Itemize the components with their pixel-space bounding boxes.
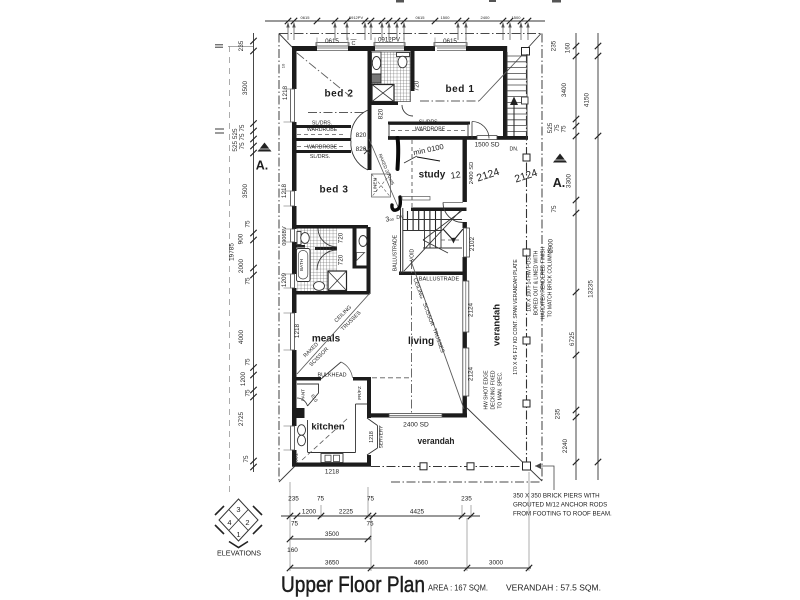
svg-text:GROUTED M/12 ANCHOR RODS: GROUTED M/12 ANCHOR RODS [513, 502, 607, 509]
svg-text:4660: 4660 [414, 560, 429, 567]
svg-text:WARDROBE: WARDROBE [307, 127, 338, 133]
svg-text:BORED OUT & LINED WITH: BORED OUT & LINED WITH [534, 250, 540, 315]
svg-text:2102: 2102 [469, 236, 476, 251]
svg-text:3500: 3500 [242, 80, 249, 95]
svg-text:1218: 1218 [282, 85, 289, 100]
svg-text:3500: 3500 [242, 183, 249, 198]
svg-text:13235: 13235 [588, 280, 595, 298]
svg-text:720: 720 [414, 80, 421, 91]
svg-text:3300: 3300 [566, 173, 573, 188]
svg-text:1: 1 [236, 530, 240, 539]
svg-text:4150: 4150 [584, 92, 591, 107]
svg-text:1200: 1200 [240, 371, 247, 386]
svg-text:BULKHEAD: BULKHEAD [317, 373, 346, 379]
svg-text:1500: 1500 [441, 15, 451, 20]
svg-text:1200: 1200 [302, 509, 317, 516]
svg-text:VERANDAH : 57.5 SQM.: VERANDAH : 57.5 SQM. [506, 584, 601, 593]
svg-text:verandah: verandah [492, 304, 503, 346]
svg-text:75: 75 [561, 125, 568, 133]
svg-text:BALLUSTRADE: BALLUSTRADE [393, 234, 399, 271]
svg-text:235: 235 [555, 408, 562, 419]
svg-text:SL/DRS.: SL/DRS. [312, 121, 332, 127]
svg-text:bed 2: bed 2 [324, 89, 353, 100]
svg-text:2900: 2900 [548, 238, 555, 253]
svg-text:350 X 350 BRICK PIERS WITH: 350 X 350 BRICK PIERS WITH [513, 493, 600, 500]
svg-text:720: 720 [338, 254, 345, 265]
svg-text:2400 SD: 2400 SD [403, 422, 429, 429]
svg-text:12: 12 [450, 169, 461, 180]
svg-text:4: 4 [227, 518, 231, 527]
svg-text:75: 75 [245, 389, 252, 397]
svg-text:160: 160 [287, 547, 298, 554]
svg-text:1500: 1500 [512, 15, 522, 20]
svg-text:bed 1: bed 1 [445, 84, 474, 95]
svg-text:235: 235 [551, 40, 558, 51]
svg-text:100 X 100 F14 HW POST: 100 X 100 F14 HW POST [527, 254, 533, 312]
svg-text:75: 75 [366, 521, 374, 528]
svg-text:6725: 6725 [569, 331, 576, 346]
svg-text:WO: WO [297, 411, 305, 416]
svg-text:WARDROBE: WARDROBE [307, 145, 338, 151]
svg-text:3400: 3400 [561, 82, 568, 97]
svg-text:19785: 19785 [229, 243, 236, 261]
svg-text:1218: 1218 [294, 323, 301, 338]
svg-text:verandah: verandah [418, 436, 455, 447]
svg-text:235: 235 [238, 40, 245, 51]
svg-text:2000: 2000 [238, 258, 245, 273]
svg-text:720: 720 [338, 232, 345, 243]
svg-text:kitchen: kitchen [311, 422, 344, 433]
svg-text:SL/DRS.: SL/DRS. [310, 154, 330, 160]
svg-text:WARDROBE: WARDROBE [415, 127, 446, 133]
svg-text:10: 10 [281, 63, 286, 68]
svg-text:1218: 1218 [325, 469, 340, 476]
svg-text:Upper Floor Plan: Upper Floor Plan [281, 572, 425, 597]
svg-text:4425: 4425 [410, 509, 425, 516]
svg-text:study: study [419, 170, 446, 181]
svg-text:75: 75 [551, 205, 558, 213]
svg-text:75: 75 [245, 220, 252, 228]
svg-text:FROM FOOTING TO ROOF BEAM.: FROM FOOTING TO ROOF BEAM. [513, 511, 612, 518]
svg-text:75 75 75: 75 75 75 [239, 124, 246, 149]
svg-text:235: 235 [288, 496, 299, 503]
svg-text:0615: 0615 [301, 15, 311, 20]
svg-text:525: 525 [547, 122, 554, 133]
svg-text:HARDITEX RENDERED FINISH: HARDITEX RENDERED FINISH [541, 246, 547, 319]
svg-text:75: 75 [245, 277, 252, 285]
svg-text:BATH: BATH [299, 259, 304, 271]
svg-text:2124: 2124 [468, 302, 475, 317]
svg-text:1500 SD: 1500 SD [475, 142, 500, 149]
svg-text:75: 75 [243, 455, 250, 463]
svg-text:525 525: 525 525 [232, 128, 239, 152]
svg-text:2725: 2725 [238, 411, 245, 426]
svg-text:SERVERY: SERVERY [379, 425, 385, 449]
svg-text:FR/FZ: FR/FZ [357, 386, 363, 400]
svg-text:2124: 2124 [468, 366, 475, 381]
svg-text:DN.: DN. [510, 147, 519, 153]
svg-text:2240: 2240 [562, 438, 569, 453]
svg-text:2: 2 [245, 518, 249, 527]
svg-text:HW SHOT EDGE: HW SHOT EDGE [484, 370, 490, 410]
svg-text:AREA : 167 SQM.: AREA : 167 SQM. [428, 584, 488, 593]
svg-text:3650: 3650 [325, 560, 340, 567]
svg-text:0615: 0615 [325, 38, 339, 45]
svg-text:3500: 3500 [325, 531, 340, 538]
svg-text:4000: 4000 [238, 329, 245, 344]
svg-text:LINEN: LINEN [373, 177, 379, 192]
svg-text:VOID: VOID [410, 249, 416, 262]
svg-text:3000: 3000 [489, 560, 504, 567]
svg-text:1209: 1209 [281, 272, 288, 287]
svg-text:bed 3: bed 3 [319, 185, 348, 196]
svg-text:A.: A. [553, 176, 566, 190]
svg-text:0615: 0615 [443, 38, 457, 45]
svg-text:A.: A. [256, 159, 269, 173]
svg-text:160: 160 [565, 42, 572, 53]
svg-text:TO MATCH BRICK COLUMNS: TO MATCH BRICK COLUMNS [548, 248, 554, 317]
svg-text:820: 820 [356, 132, 367, 139]
svg-text:820: 820 [378, 108, 385, 119]
svg-text:0912PV: 0912PV [378, 37, 401, 44]
svg-text:SL/DRS.: SL/DRS. [419, 119, 439, 125]
svg-text:DECKING FIXED: DECKING FIXED [491, 370, 497, 409]
svg-text:900: 900 [238, 233, 245, 244]
svg-text:2225: 2225 [339, 509, 354, 516]
svg-text:ELEVATIONS: ELEVATIONS [217, 551, 261, 558]
svg-text:1218: 1218 [369, 431, 375, 443]
svg-text:0615: 0615 [416, 15, 426, 20]
svg-text:3: 3 [236, 505, 240, 514]
svg-text:BALLUSTRADE: BALLUSTRADE [419, 277, 460, 283]
svg-text:75: 75 [367, 496, 375, 503]
svg-text:75: 75 [245, 358, 252, 366]
svg-text:0912PV: 0912PV [349, 15, 364, 20]
svg-text:75: 75 [291, 521, 299, 528]
svg-text:C: C [352, 41, 356, 47]
svg-text:170 X 45 F17 KD CONT. SPAN V: 170 X 45 F17 KD CONT. SPAN VERANDAH PLAT… [513, 259, 519, 375]
svg-text:235: 235 [461, 496, 472, 503]
svg-text:75: 75 [317, 496, 325, 503]
svg-text:TO MAN. SPEC.: TO MAN. SPEC. [498, 371, 504, 408]
svg-text:2400: 2400 [481, 15, 491, 20]
